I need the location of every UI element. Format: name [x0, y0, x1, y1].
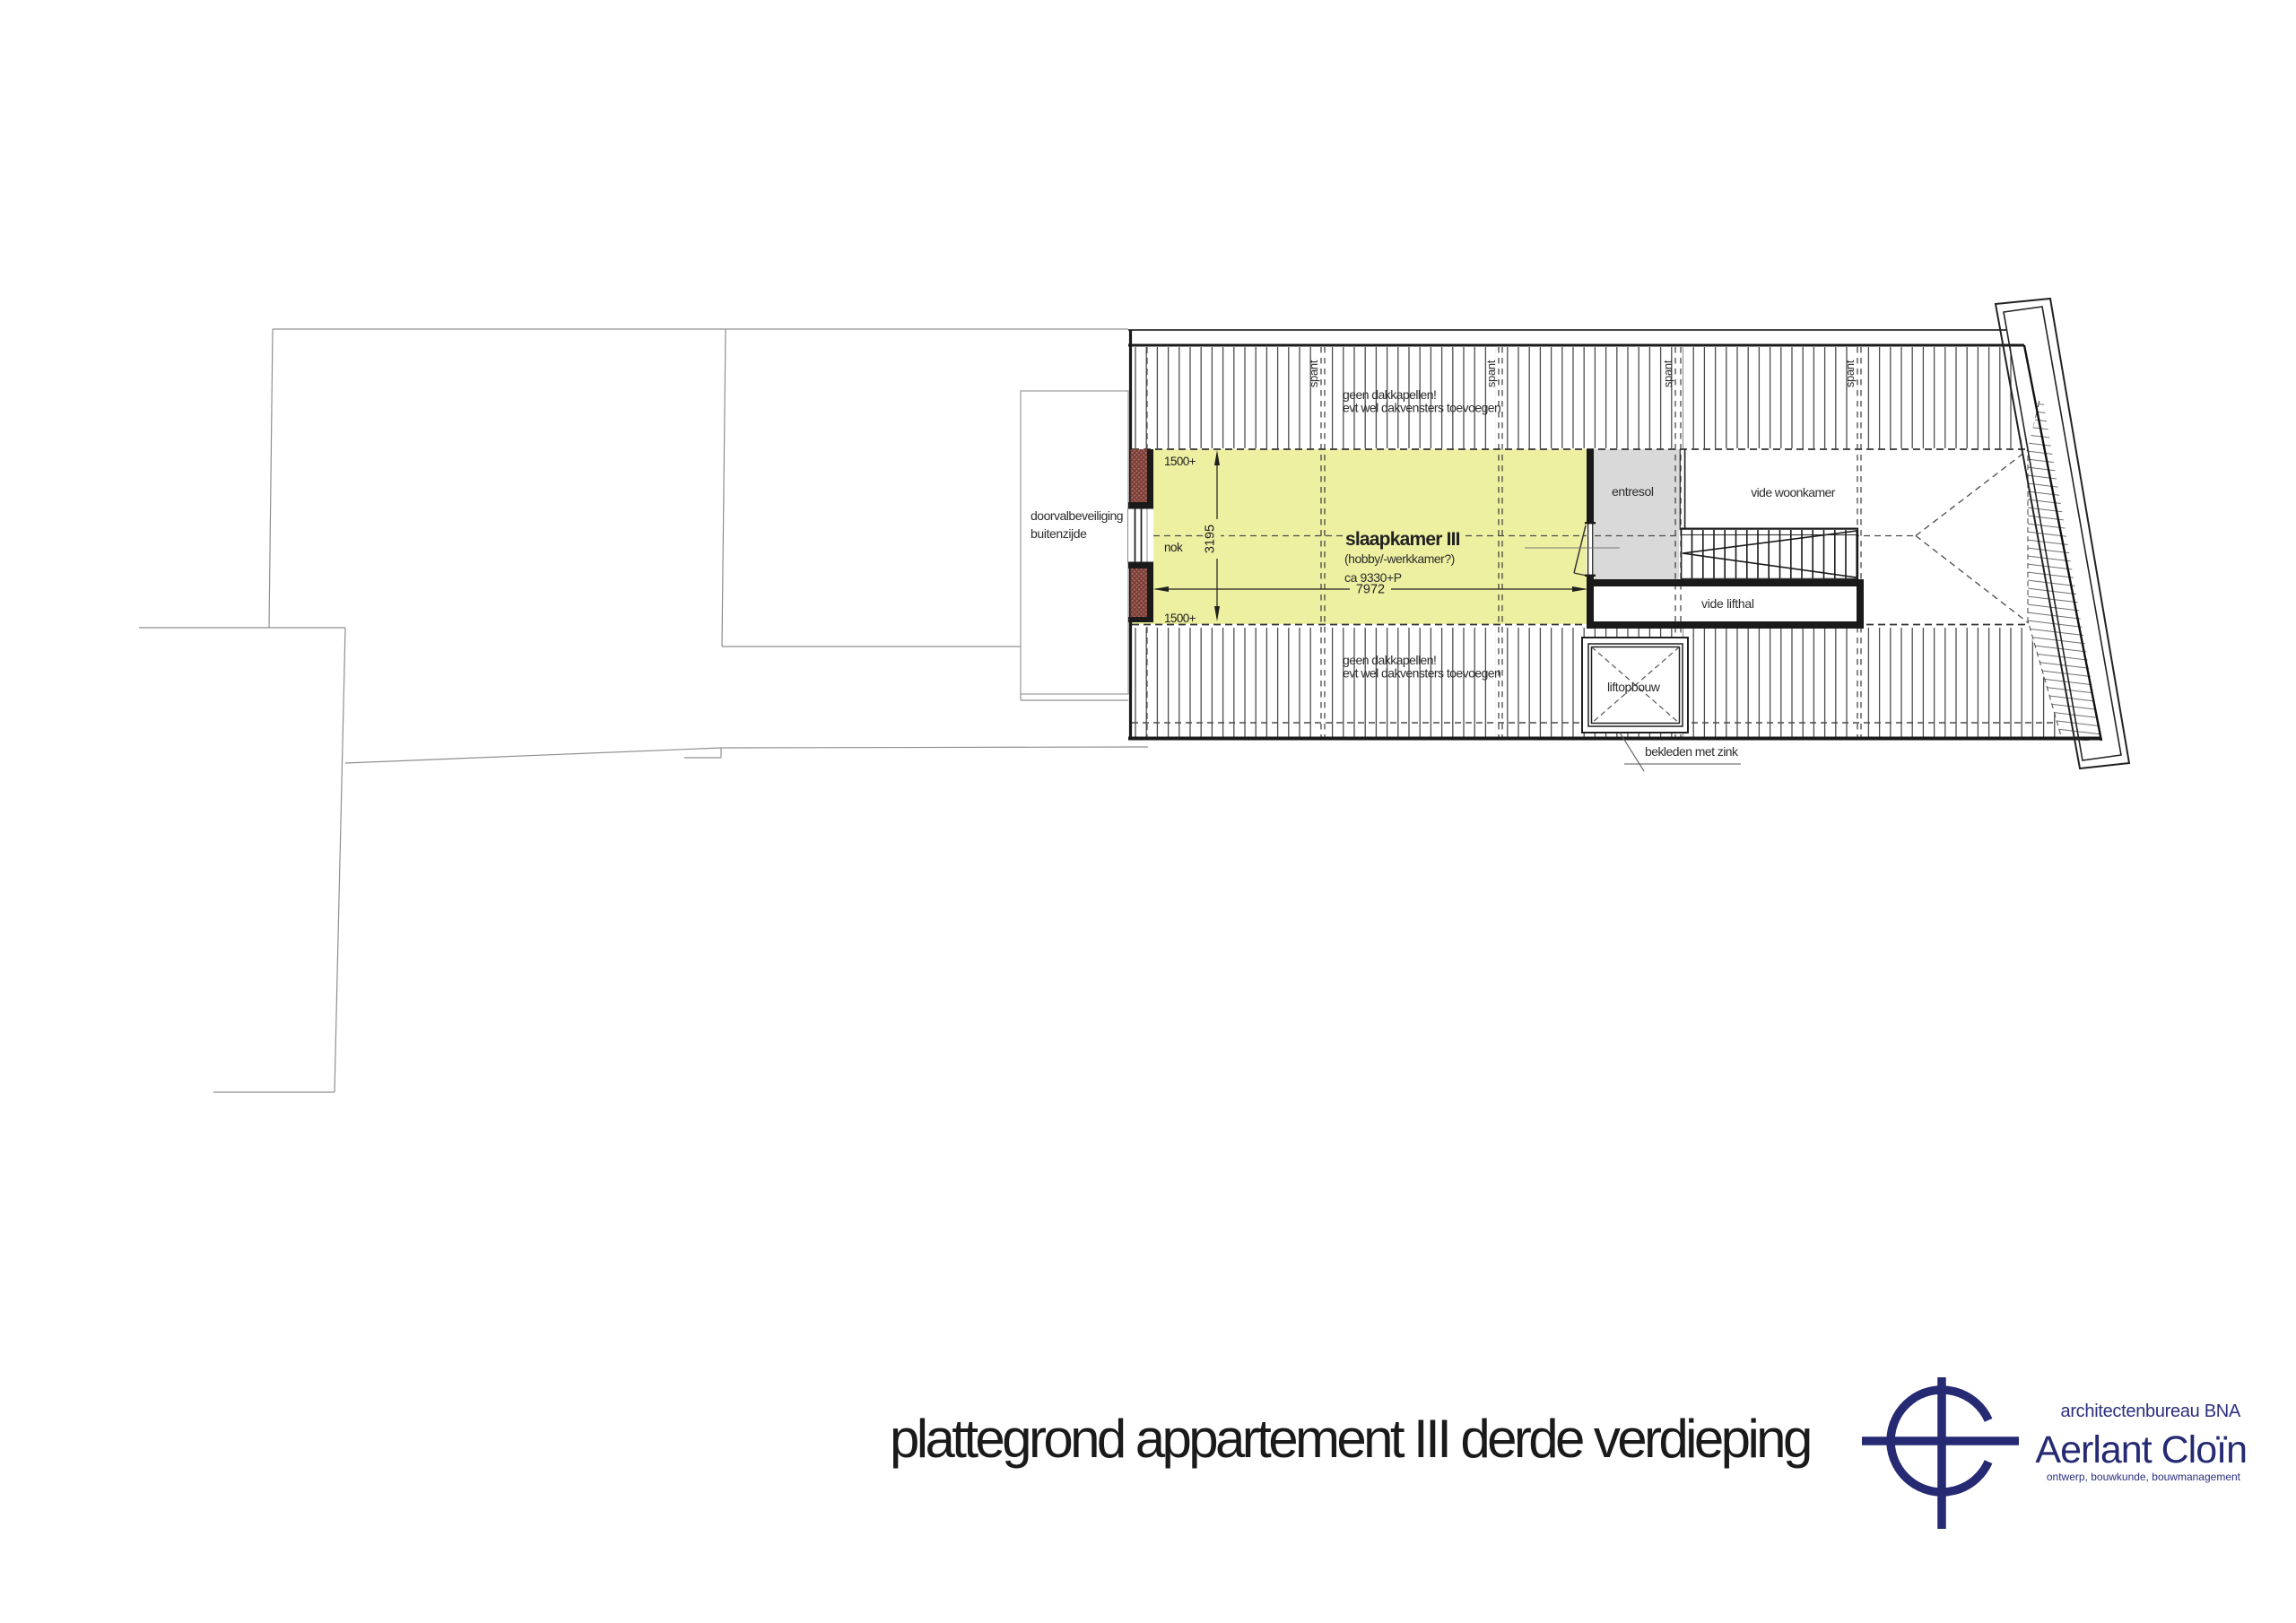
svg-text:buitenzijde: buitenzijde [1031, 526, 1087, 541]
svg-text:spant: spant [1661, 360, 1674, 387]
svg-text:entresol: entresol [1612, 484, 1654, 499]
svg-text:Aerlant Cloïn: Aerlant Cloïn [2035, 1428, 2247, 1471]
svg-text:plattegrond appartement III de: plattegrond appartement III derde verdie… [890, 1409, 1810, 1469]
svg-text:spant: spant [1843, 360, 1857, 387]
svg-text:doorvalbeveiliging: doorvalbeveiliging [1031, 508, 1123, 523]
svg-text:architectenbureau BNA: architectenbureau BNA [2061, 1402, 2241, 1421]
svg-text:bekleden met zink: bekleden met zink [1645, 744, 1739, 759]
svg-text:slaapkamer III: slaapkamer III [1345, 529, 1460, 550]
svg-text:ontwerp, bouwkunde, bouwmanage: ontwerp, bouwkunde, bouwmanagement [2047, 1471, 2241, 1483]
svg-text:(hobby/-werkkamer?): (hobby/-werkkamer?) [1344, 551, 1455, 566]
svg-text:evt wel dakvensters toevoegen: evt wel dakvensters toevoegen [1343, 401, 1500, 415]
svg-text:vide lifthal: vide lifthal [1701, 596, 1754, 611]
svg-text:vide woonkamer: vide woonkamer [1751, 485, 1835, 499]
svg-text:ca 9330+P: ca 9330+P [1344, 570, 1402, 585]
svg-text:nok: nok [1164, 541, 1183, 554]
svg-text:spant: spant [1484, 360, 1498, 387]
svg-text:3195: 3195 [1204, 525, 1218, 553]
svg-text:1500+: 1500+ [1164, 455, 1196, 468]
svg-text:1500+: 1500+ [1164, 612, 1196, 625]
svg-text:liftopbouw: liftopbouw [1607, 680, 1661, 694]
svg-text:evt wel dakvensters toevoegen: evt wel dakvensters toevoegen [1343, 666, 1500, 681]
svg-text:spant: spant [1307, 360, 1320, 387]
